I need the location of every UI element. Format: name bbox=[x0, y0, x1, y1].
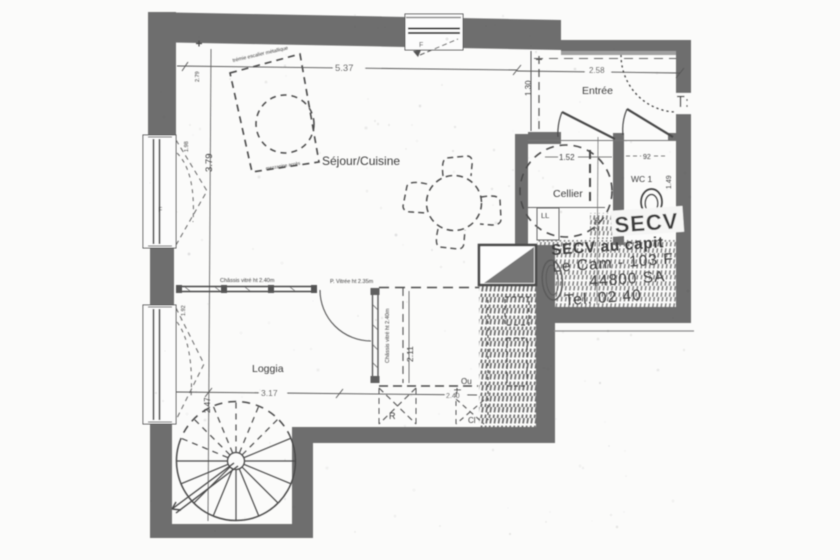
svg-text:LL: LL bbox=[541, 211, 549, 220]
svg-text:3.17: 3.17 bbox=[261, 388, 278, 398]
svg-text:3.79: 3.79 bbox=[204, 154, 215, 173]
svg-text:Séjour/Cuisine: Séjour/Cuisine bbox=[322, 154, 400, 168]
svg-text:1.98: 1.98 bbox=[184, 141, 190, 152]
svg-text:R: R bbox=[389, 411, 396, 421]
svg-text:F: F bbox=[158, 207, 162, 214]
svg-text:5.37: 5.37 bbox=[335, 63, 354, 74]
svg-text:92: 92 bbox=[643, 154, 651, 161]
svg-text:Châssis vitré ht 2.40m: Châssis vitré ht 2.40m bbox=[220, 278, 275, 284]
svg-text:F: F bbox=[419, 42, 423, 49]
svg-text:Cellier: Cellier bbox=[553, 188, 583, 200]
svg-text:1.30: 1.30 bbox=[524, 80, 533, 96]
svg-text:2.79: 2.79 bbox=[195, 71, 201, 82]
svg-text:SECV: SECV bbox=[614, 208, 680, 237]
svg-text:Loggia: Loggia bbox=[252, 363, 284, 375]
svg-text:Entrée: Entrée bbox=[582, 85, 613, 97]
svg-text:Châssis vitré ht 2.40m: Châssis vitré ht 2.40m bbox=[385, 308, 391, 363]
svg-text:Cl: Cl bbox=[468, 416, 476, 425]
svg-text:Ou: Ou bbox=[461, 377, 472, 386]
svg-text:2.11: 2.11 bbox=[405, 346, 415, 362]
svg-text:1.92: 1.92 bbox=[181, 305, 187, 316]
svg-text:WC 1: WC 1 bbox=[631, 174, 653, 184]
svg-text:2.58: 2.58 bbox=[589, 66, 605, 75]
svg-text:1.52: 1.52 bbox=[559, 153, 575, 162]
svg-text:2.40: 2.40 bbox=[446, 393, 460, 400]
svg-text:1.49: 1.49 bbox=[666, 175, 673, 189]
svg-text:P. Vitrée ht 2.35m: P. Vitrée ht 2.35m bbox=[330, 279, 374, 285]
